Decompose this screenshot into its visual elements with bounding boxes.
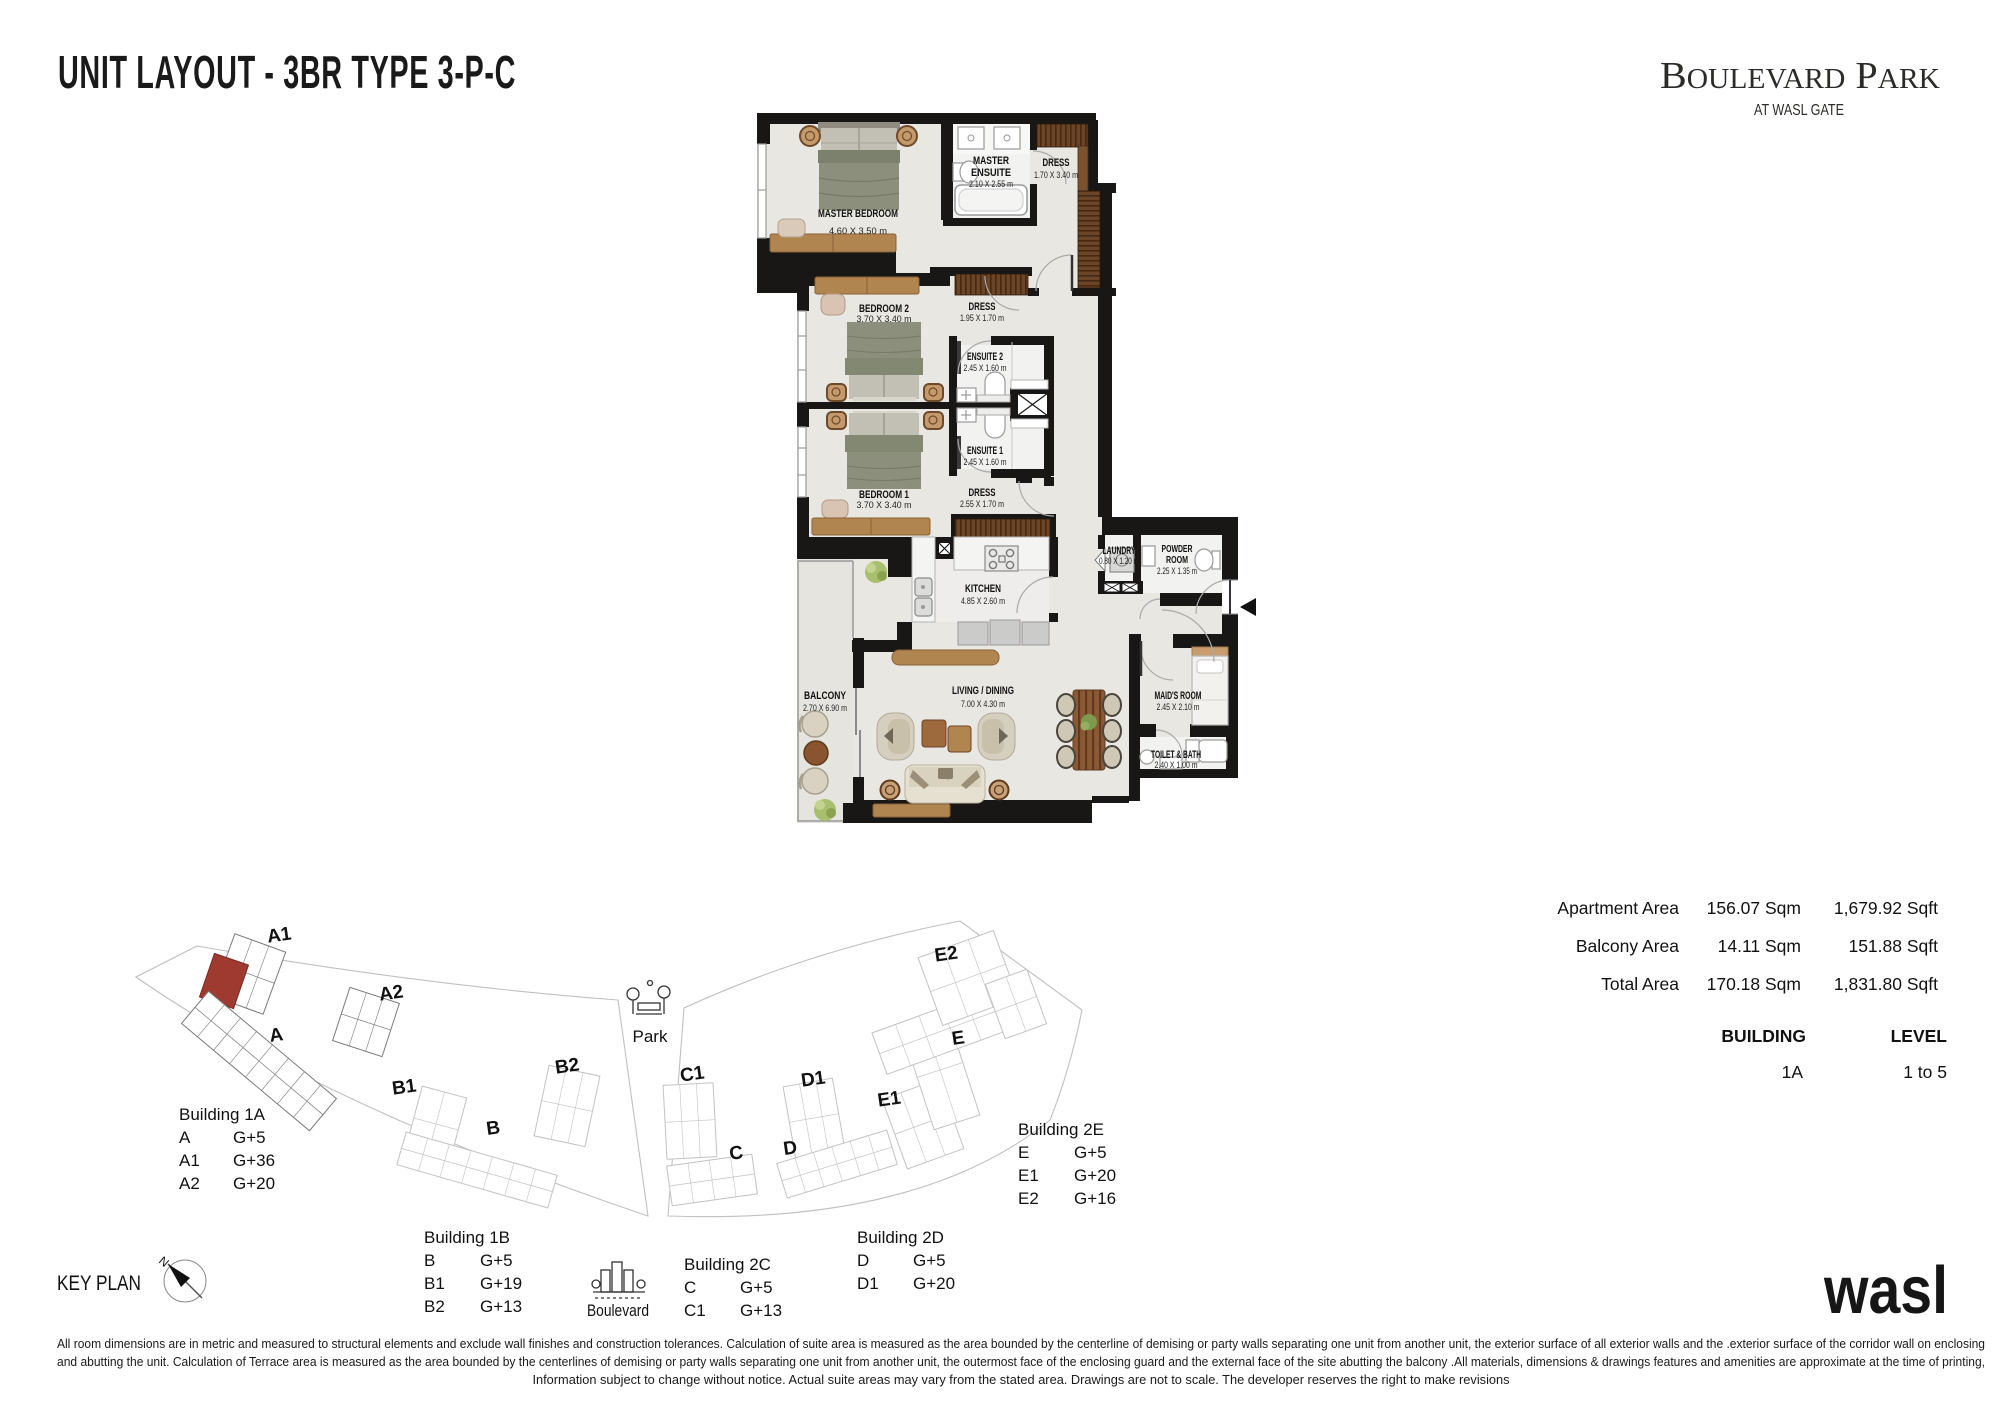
svg-text:BUILDING: BUILDING [1721,1026,1806,1046]
svg-text:1,831.80 Sqft: 1,831.80 Sqft [1834,974,1938,994]
svg-text:MAID'S ROOM: MAID'S ROOM [1155,690,1202,702]
svg-text:3.70 X 3.40 m: 3.70 X 3.40 m [857,500,912,511]
svg-text:MASTER: MASTER [973,155,1009,167]
svg-text:Apartment Area: Apartment Area [1557,898,1679,918]
svg-text:Balcony Area: Balcony Area [1576,936,1679,956]
svg-text:Building 2E: Building 2E [1018,1120,1104,1139]
svg-text:Building 1B: Building 1B [424,1228,510,1247]
svg-text:G+36: G+36 [233,1151,275,1170]
svg-text:1.95 X 1.70 m: 1.95 X 1.70 m [960,313,1004,324]
svg-text:1.70 X 3.40 m: 1.70 X 3.40 m [1034,170,1078,181]
svg-text:B2: B2 [424,1297,445,1316]
svg-text:B1: B1 [424,1274,445,1293]
svg-text:Building 1A: Building 1A [179,1105,266,1124]
svg-text:A1: A1 [179,1151,200,1170]
svg-text:E2: E2 [933,943,959,967]
svg-text:B2: B2 [554,1054,581,1078]
svg-text:G+5: G+5 [480,1251,513,1270]
svg-text:LEVEL: LEVEL [1891,1026,1948,1046]
svg-text:C: C [684,1278,696,1297]
svg-text:and abutting the unit. Calcula: and abutting the unit. Calculation of Te… [57,1354,1985,1369]
svg-text:KITCHEN: KITCHEN [965,583,1001,595]
svg-text:156.07 Sqm: 156.07 Sqm [1707,898,1801,918]
svg-text:E: E [1018,1143,1029,1162]
svg-text:G+5: G+5 [740,1278,773,1297]
svg-text:LIVING / DINING: LIVING / DINING [952,685,1014,697]
svg-text:MASTER BEDROOM: MASTER BEDROOM [818,208,898,220]
svg-text:DRESS: DRESS [1043,157,1070,169]
svg-text:DRESS: DRESS [969,487,996,499]
svg-text:1A: 1A [1782,1062,1804,1082]
svg-text:A2: A2 [378,981,405,1005]
svg-text:E2: E2 [1018,1189,1039,1208]
svg-text:170.18 Sqm: 170.18 Sqm [1707,974,1801,994]
svg-text:C1: C1 [679,1062,706,1086]
svg-text:G+20: G+20 [1074,1166,1116,1185]
svg-text:UNIT LAYOUT - 3BR TYPE 3-P-C: UNIT LAYOUT - 3BR TYPE 3-P-C [58,46,516,98]
svg-text:151.88 Sqft: 151.88 Sqft [1848,936,1938,956]
svg-text:G+5: G+5 [1074,1143,1107,1162]
svg-text:BALCONY: BALCONY [804,690,847,702]
svg-text:2.55 X 1.70 m: 2.55 X 1.70 m [960,499,1004,510]
svg-text:Boulevard: Boulevard [587,1301,649,1320]
svg-text:E1: E1 [1018,1166,1039,1185]
svg-text:C1: C1 [684,1301,706,1320]
svg-text:Park: Park [633,1027,668,1046]
svg-text:G+13: G+13 [740,1301,782,1320]
svg-text:G+5: G+5 [913,1251,946,1270]
svg-text:2.70 X 6.90 m: 2.70 X 6.90 m [803,703,847,714]
svg-text:DRESS: DRESS [969,301,996,313]
svg-text:4.85 X 2.60 m: 4.85 X 2.60 m [961,596,1005,607]
svg-text:B1: B1 [391,1075,418,1099]
svg-text:A: A [179,1128,191,1147]
svg-text:ENSUITE 2: ENSUITE 2 [967,351,1003,363]
svg-text:2.40 X 1.00 m: 2.40 X 1.00 m [1155,760,1198,771]
svg-text:G+20: G+20 [233,1174,275,1193]
svg-text:wasl: wasl [1823,1253,1948,1328]
svg-text:Building 2C: Building 2C [684,1255,771,1274]
svg-text:7.00 X 4.30 m: 7.00 X 4.30 m [961,699,1005,710]
svg-text:D: D [857,1251,869,1270]
svg-text:Building 2D: Building 2D [857,1228,944,1247]
svg-text:D: D [782,1137,799,1160]
svg-text:2.45 X 2.10 m: 2.45 X 2.10 m [1157,702,1200,713]
svg-text:2.45 X 1.60 m: 2.45 X 1.60 m [964,457,1007,468]
svg-text:3.70 X 3.40 m: 3.70 X 3.40 m [857,314,912,325]
svg-text:D1: D1 [800,1067,827,1091]
svg-text:14.11 Sqm: 14.11 Sqm [1718,936,1801,956]
svg-text:G+5: G+5 [233,1128,266,1147]
svg-text:B: B [424,1251,435,1270]
svg-text:1,679.92 Sqft: 1,679.92 Sqft [1834,898,1938,918]
svg-text:4.60 X 3.50 m: 4.60 X 3.50 m [829,226,887,237]
svg-text:G+16: G+16 [1074,1189,1116,1208]
svg-text:KEY PLAN: KEY PLAN [57,1272,141,1295]
svg-text:E1: E1 [876,1087,902,1111]
svg-text:2.45 X 1.60 m: 2.45 X 1.60 m [964,363,1007,374]
svg-text:1 to 5: 1 to 5 [1903,1062,1947,1082]
svg-text:B: B [485,1117,502,1140]
svg-text:ROOM: ROOM [1166,554,1188,566]
svg-text:BOULEVARD PARK: BOULEVARD PARK [1660,55,1940,97]
svg-text:All room dimensions are in met: All room dimensions are in metric and me… [57,1336,1985,1351]
svg-text:G+20: G+20 [913,1274,955,1293]
svg-text:2.10 X 2.55 m: 2.10 X 2.55 m [969,179,1013,190]
svg-text:D1: D1 [857,1274,879,1293]
svg-text:G+19: G+19 [480,1274,522,1293]
svg-text:Information subject to change: Information subject to change without no… [532,1372,1509,1387]
svg-text:2.25 X 1.35 m: 2.25 X 1.35 m [1157,566,1197,576]
svg-text:G+13: G+13 [480,1297,522,1316]
svg-text:AT WASL GATE: AT WASL GATE [1754,102,1844,119]
svg-text:ENSUITE: ENSUITE [971,167,1011,179]
svg-text:A2: A2 [179,1174,200,1193]
svg-text:ENSUITE 1: ENSUITE 1 [967,445,1003,457]
svg-text:A1: A1 [266,923,293,947]
svg-text:Total Area: Total Area [1601,974,1679,994]
svg-text:0.80 X 1.20 m: 0.80 X 1.20 m [1099,556,1139,567]
